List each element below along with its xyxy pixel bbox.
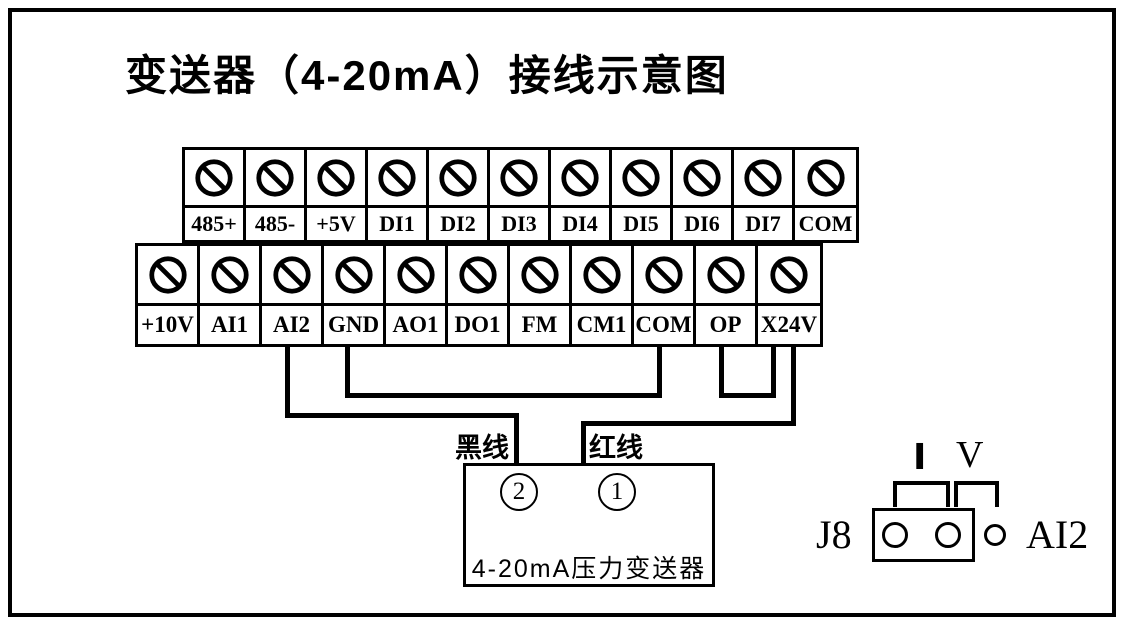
terminal-bottom-do1: DO1 [448, 246, 510, 344]
current-mode-bracket [893, 481, 950, 485]
terminal-label: 485+ [185, 208, 243, 240]
screw-terminal [612, 150, 670, 208]
terminal-bottom-op: OP [696, 246, 758, 344]
screw-icon [498, 157, 540, 199]
screw-terminal [246, 150, 304, 208]
terminal-label: +5V [307, 208, 365, 240]
screw-terminal [758, 246, 820, 306]
transmitter-pin-1: 1 [598, 473, 636, 511]
terminal-label: +10V [138, 306, 197, 344]
screw-icon [315, 157, 357, 199]
terminal-bottom-+10v: +10V [138, 246, 200, 344]
screw-icon [519, 254, 561, 296]
screw-terminal [138, 246, 197, 306]
screw-icon [643, 254, 685, 296]
screw-terminal [262, 246, 321, 306]
terminal-label: AI1 [200, 306, 259, 344]
screw-terminal [324, 246, 383, 306]
wire-gnd-com-horizontal [345, 393, 662, 398]
terminal-top-di2: DI2 [429, 150, 490, 240]
screw-icon [147, 254, 189, 296]
terminal-top-+5v: +5V [307, 150, 368, 240]
terminal-label: AI2 [262, 306, 321, 344]
terminal-label: DI5 [612, 208, 670, 240]
terminal-label: FM [510, 306, 569, 344]
terminal-label: DI2 [429, 208, 487, 240]
screw-icon [457, 254, 499, 296]
screw-terminal [696, 246, 755, 306]
screw-icon [395, 254, 437, 296]
terminal-label: DO1 [448, 306, 507, 344]
terminal-top-485+: 485+ [185, 150, 246, 240]
wire-gnd-drop [345, 347, 350, 398]
terminal-bottom-fm: FM [510, 246, 572, 344]
terminal-label: 485- [246, 208, 304, 240]
transmitter-pin-2: 2 [500, 473, 538, 511]
screw-terminal [634, 246, 693, 306]
terminal-top-di7: DI7 [734, 150, 795, 240]
screw-terminal [386, 246, 445, 306]
screw-icon [193, 157, 235, 199]
terminal-top-di1: DI1 [368, 150, 429, 240]
j8-connector-label: J8 [816, 511, 852, 558]
screw-terminal [368, 150, 426, 208]
terminal-bottom-com: COM [634, 246, 696, 344]
screw-icon [620, 157, 662, 199]
screw-icon [271, 254, 313, 296]
screw-terminal [510, 246, 569, 306]
current-mode-bracket-right-tick [946, 481, 950, 507]
red-wire-label: 红线 [589, 426, 643, 465]
screw-terminal [572, 246, 631, 306]
j8-pin-2 [935, 522, 961, 548]
terminal-label: COM [634, 306, 693, 344]
screw-terminal [185, 150, 243, 208]
terminal-label: DI4 [551, 208, 609, 240]
voltage-mode-bracket-left-tick [954, 481, 958, 507]
screw-icon [705, 254, 747, 296]
screw-icon [768, 254, 810, 296]
terminal-label: AO1 [386, 306, 445, 344]
terminal-bottom-ao1: AO1 [386, 246, 448, 344]
screw-icon [805, 157, 847, 199]
screw-icon [437, 157, 479, 199]
terminal-label: DI1 [368, 208, 426, 240]
wire-black-to-pin2 [514, 413, 519, 466]
terminal-label: DI7 [734, 208, 792, 240]
black-wire-label: 黑线 [455, 426, 509, 465]
wire-red-to-pin1 [581, 421, 586, 466]
terminal-top-di5: DI5 [612, 150, 673, 240]
j8-pin-1 [882, 522, 908, 548]
terminal-bottom-x24v: X24V [758, 246, 820, 344]
terminal-bottom-ai2: AI2 [262, 246, 324, 344]
terminal-bottom-gnd: GND [324, 246, 386, 344]
current-mode-bracket-left-tick [893, 481, 897, 507]
screw-terminal [429, 150, 487, 208]
screw-terminal [200, 246, 259, 306]
screw-icon [742, 157, 784, 199]
screw-icon [581, 254, 623, 296]
wire-op-drop [719, 347, 724, 398]
terminal-row-top: 485+485-+5VDI1DI2DI3DI4DI5DI6DI7COM [182, 147, 859, 243]
current-mode-label: I [913, 437, 926, 478]
ai2-channel-label: AI2 [1026, 511, 1088, 558]
screw-terminal [448, 246, 507, 306]
screw-terminal [307, 150, 365, 208]
transmitter-label: 4-20mA压力变送器 [466, 549, 712, 585]
j8-pin-3 [984, 524, 1006, 546]
terminal-top-com: COM [795, 150, 856, 240]
diagram-title: 变送器（4-20mA）接线示意图 [125, 42, 729, 103]
wire-x24v-left-drop [771, 347, 776, 398]
screw-terminal [551, 150, 609, 208]
screw-icon [254, 157, 296, 199]
terminal-top-di3: DI3 [490, 150, 551, 240]
terminal-bottom-cm1: CM1 [572, 246, 634, 344]
voltage-mode-bracket-right-tick [995, 481, 999, 507]
screw-terminal [673, 150, 731, 208]
wire-com-drop [657, 347, 662, 398]
voltage-mode-bracket [954, 481, 999, 485]
terminal-top-di6: DI6 [673, 150, 734, 240]
screw-terminal [490, 150, 548, 208]
wire-red-x24v-drop [791, 347, 796, 426]
terminal-top-485-: 485- [246, 150, 307, 240]
terminal-label: OP [696, 306, 755, 344]
terminal-label: DI3 [490, 208, 548, 240]
screw-icon [333, 254, 375, 296]
terminal-label: COM [795, 208, 856, 240]
terminal-label: GND [324, 306, 383, 344]
terminal-label: DI6 [673, 208, 731, 240]
screw-icon [559, 157, 601, 199]
wire-black-ai2-drop [285, 347, 290, 418]
screw-terminal [795, 150, 856, 208]
terminal-top-di4: DI4 [551, 150, 612, 240]
terminal-bottom-ai1: AI1 [200, 246, 262, 344]
wire-op-x24v-horizontal [719, 393, 776, 398]
voltage-mode-label: V [956, 433, 983, 477]
screw-icon [681, 157, 723, 199]
screw-terminal [734, 150, 792, 208]
screw-icon [376, 157, 418, 199]
terminal-label: X24V [758, 306, 820, 344]
wire-black-horizontal [285, 413, 519, 418]
terminal-label: CM1 [572, 306, 631, 344]
screw-icon [209, 254, 251, 296]
terminal-row-bottom: +10VAI1AI2GNDAO1DO1FMCM1COMOPX24V [135, 243, 823, 347]
